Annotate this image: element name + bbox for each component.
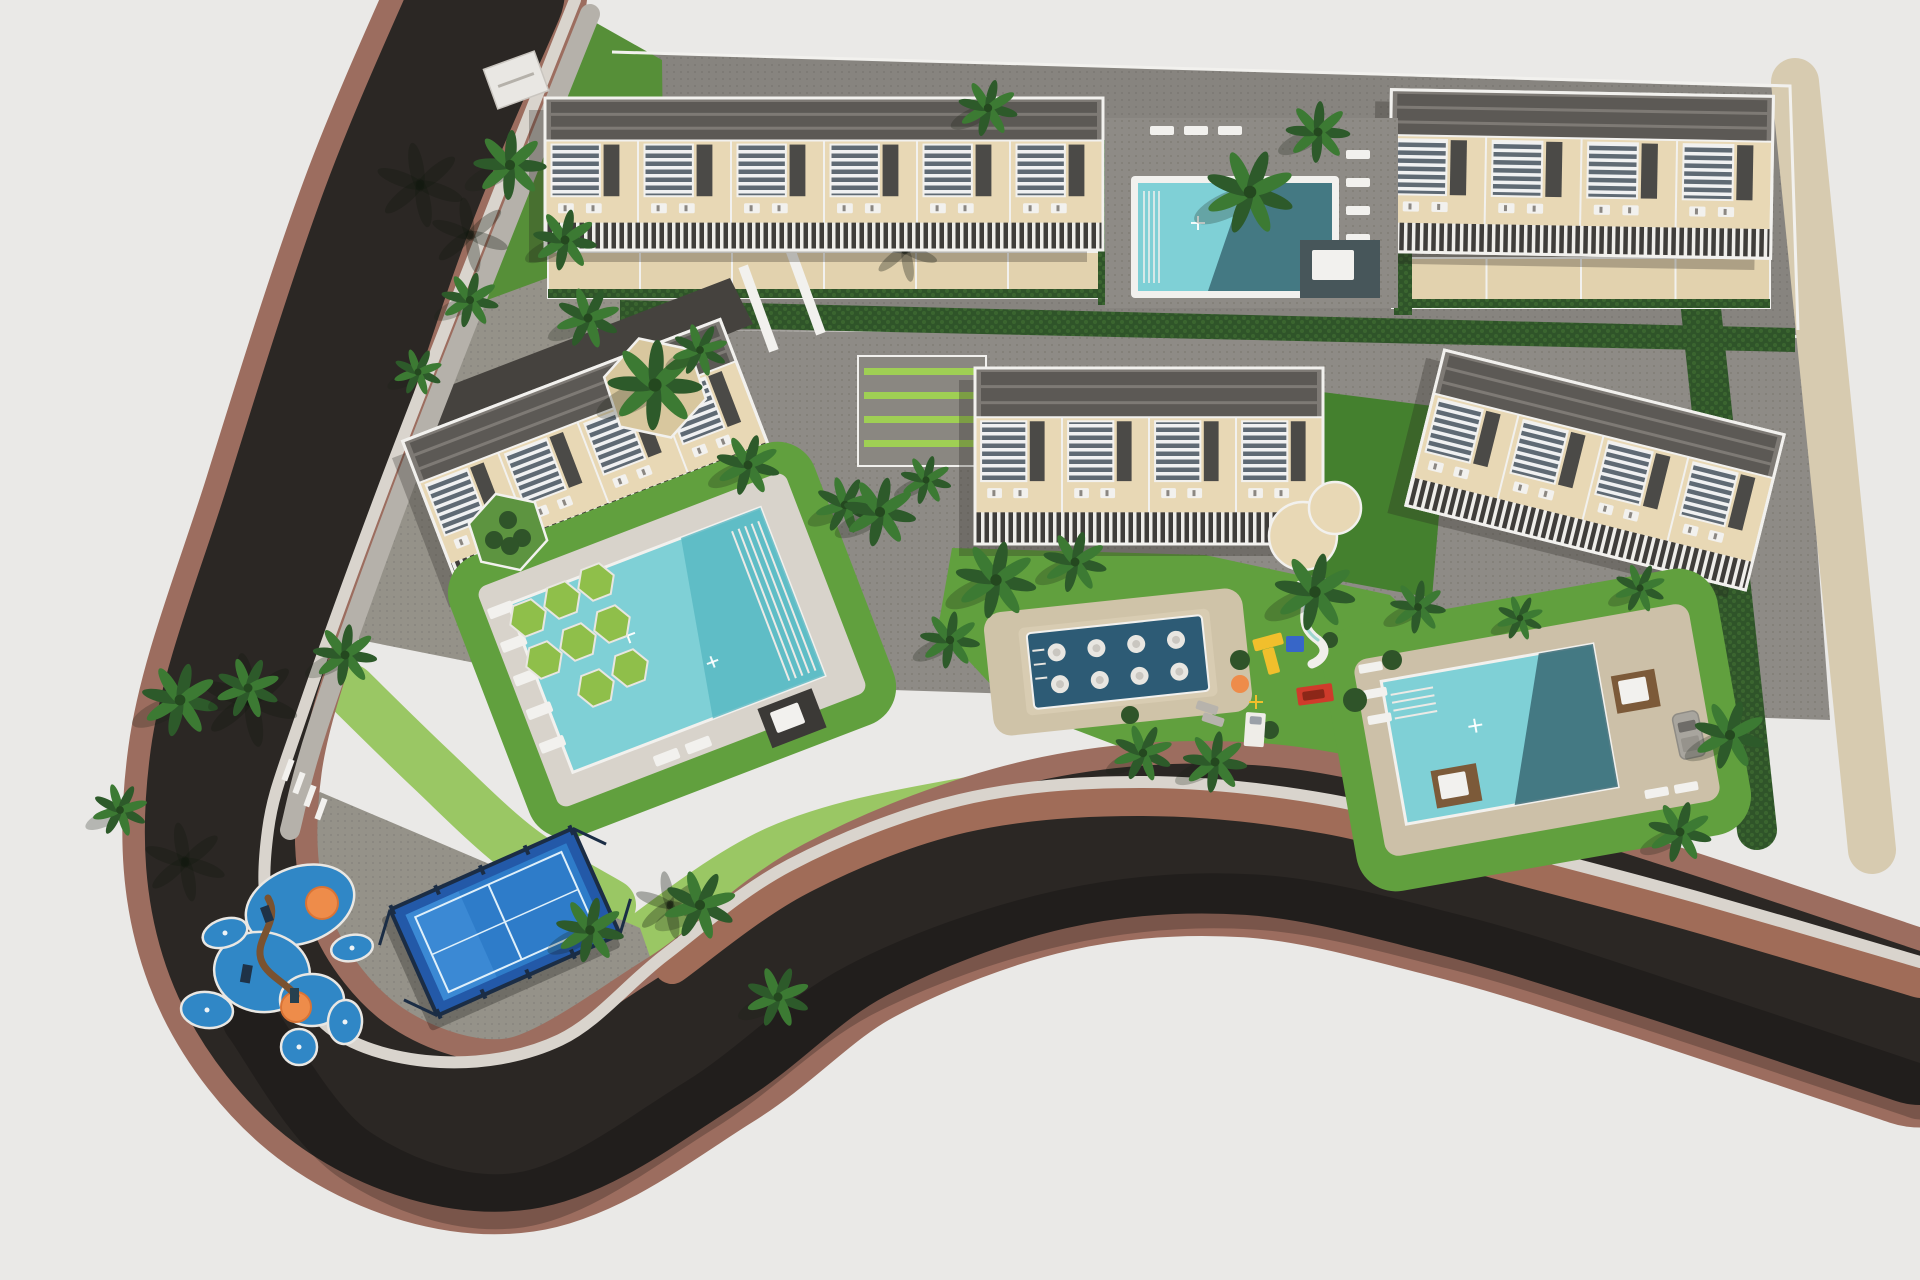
scene-svg bbox=[0, 0, 1920, 1280]
building-block-top-left bbox=[529, 98, 1103, 262]
building-block-center bbox=[959, 368, 1361, 570]
site-plan-render bbox=[0, 0, 1920, 1280]
building-block-top-right bbox=[1372, 89, 1773, 270]
pool-north bbox=[1105, 118, 1398, 308]
